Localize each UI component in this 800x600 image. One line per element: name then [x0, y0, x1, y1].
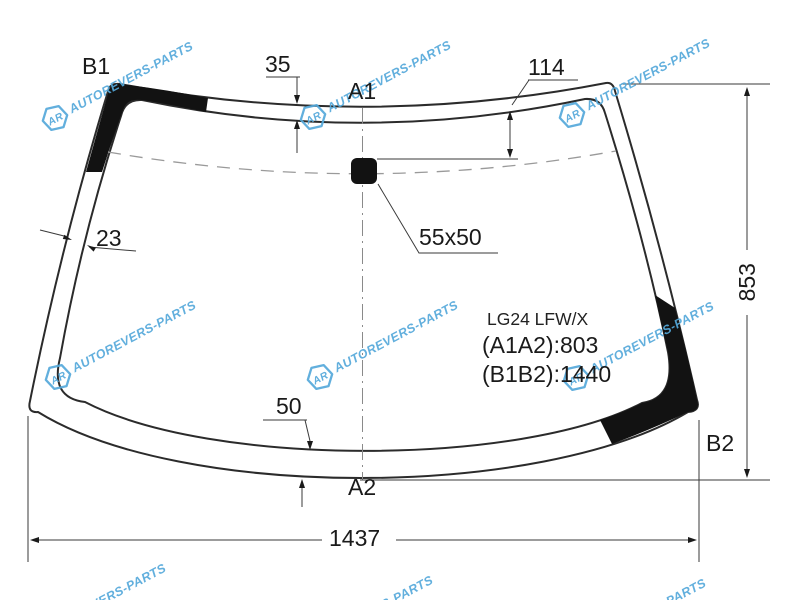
- dim-height-value: 853: [734, 242, 760, 322]
- dim-top-band-value: 35: [265, 51, 291, 77]
- label-a1: A1: [348, 78, 376, 104]
- arrow-853-down-icon: [744, 469, 750, 478]
- arrow-35-down-icon: [294, 95, 300, 104]
- dim-a1a2-value: (A1A2):803: [482, 332, 598, 358]
- dim-mirror-offset-value: 114: [528, 54, 565, 80]
- windshield-diagram: AR AUTOREVERS-PARTS AR AUTOREVERS-PARTS …: [0, 0, 800, 600]
- arrow-1437-right-icon: [688, 537, 697, 543]
- outer-glass-edge: [29, 83, 698, 478]
- mirror-mount-pad: [351, 158, 377, 184]
- dim-width-value: 1437: [329, 525, 380, 551]
- dim-bottom-band-value: 50: [276, 393, 302, 419]
- dim-23-leader-outer: [40, 230, 64, 236]
- label-b2: B2: [706, 430, 734, 456]
- windshield-outline: [29, 83, 698, 478]
- label-a2: A2: [348, 474, 376, 500]
- part-code: LG24 LFW/X: [487, 309, 588, 329]
- arrow-50-up-icon: [299, 479, 305, 488]
- arrow-853-up-icon: [744, 87, 750, 96]
- dim-b1b2-value: (B1B2):1440: [482, 361, 611, 387]
- arrow-1437-left-icon: [30, 537, 39, 543]
- dim-side-band-value: 23: [96, 225, 122, 251]
- label-b1: B1: [82, 53, 110, 79]
- dim-mirror-size-value: 55x50: [419, 224, 482, 250]
- diagram-canvas: [0, 0, 800, 600]
